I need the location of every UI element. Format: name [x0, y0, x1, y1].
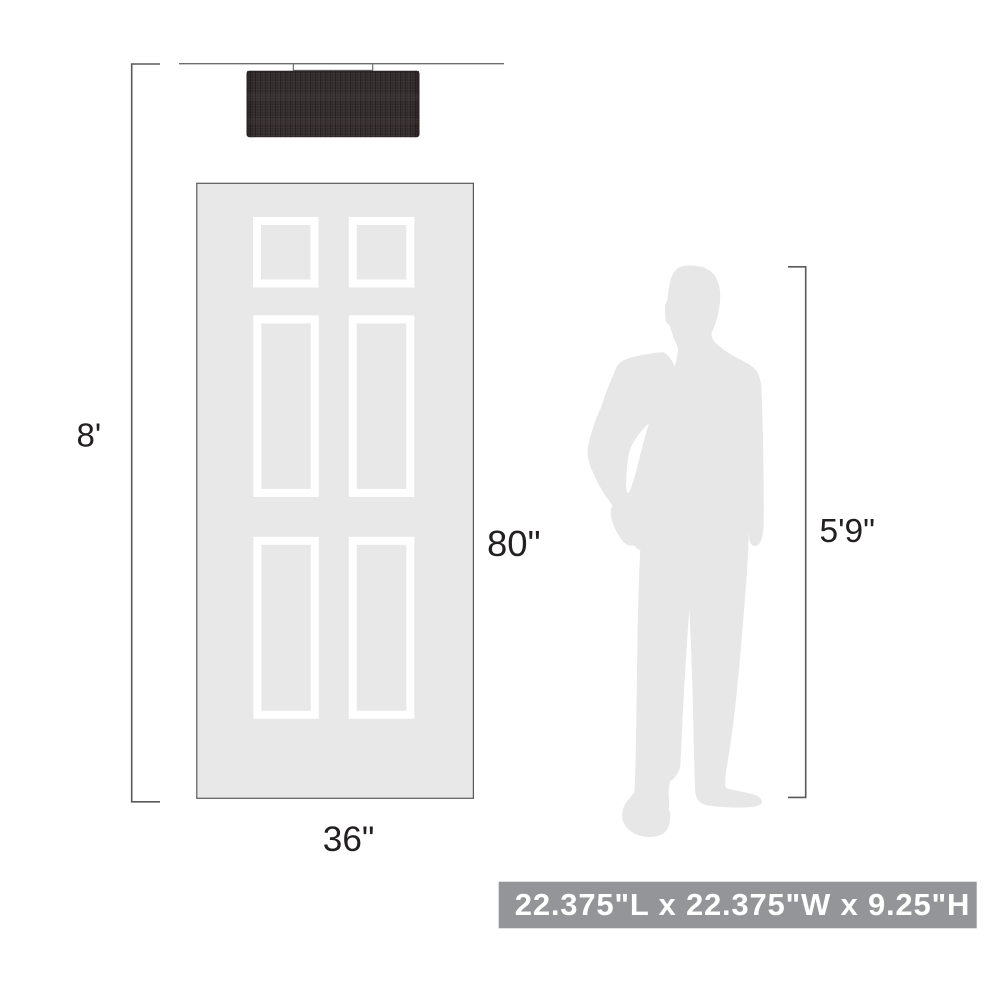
svg-text:80": 80" — [487, 523, 541, 564]
svg-text:5'9": 5'9" — [820, 513, 876, 550]
svg-text:36": 36" — [323, 820, 375, 859]
svg-text:8': 8' — [77, 417, 102, 454]
svg-text:22.375"L x 22.375"W x 9.25"H: 22.375"L x 22.375"W x 9.25"H — [515, 887, 970, 922]
